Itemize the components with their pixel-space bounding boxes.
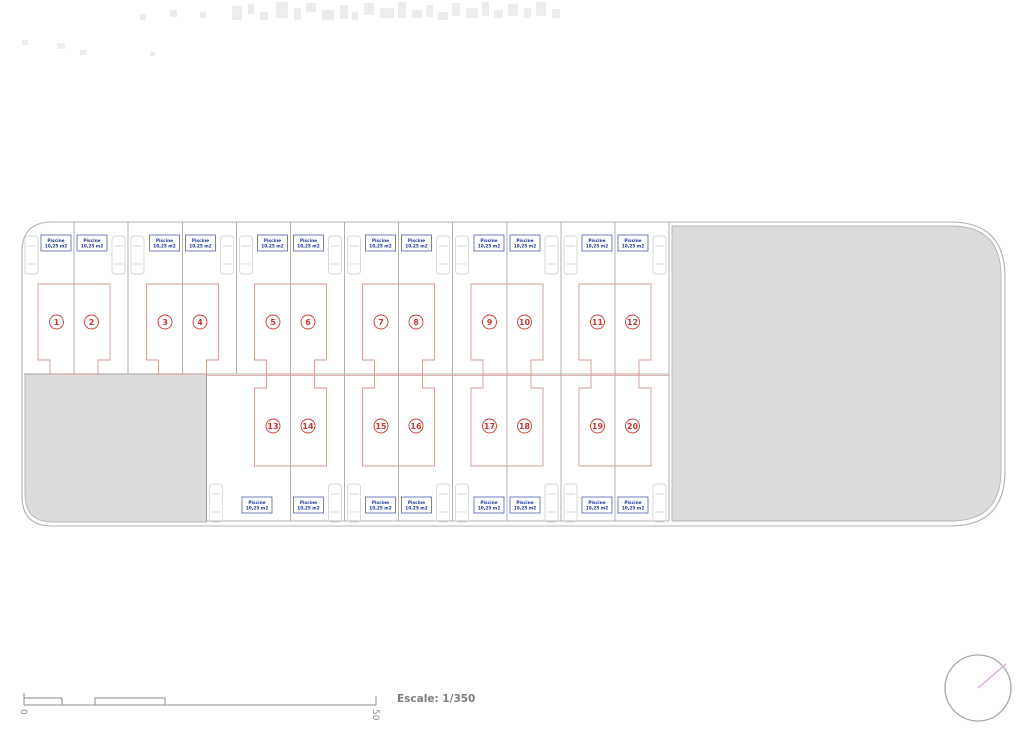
watermark-smudge — [260, 12, 268, 20]
pool-label-line1: Piscine — [588, 500, 605, 506]
plot-number-text: 2 — [89, 318, 95, 327]
pool-label-line2: 10,25 m2 — [622, 506, 645, 512]
pool-label-box: Piscine10,25 m2 — [618, 497, 648, 513]
plot-number: 18 — [518, 419, 532, 433]
plot-number: 14 — [301, 419, 315, 433]
plot-number: 20 — [626, 419, 640, 433]
pool-label-line2: 10,25 m2 — [514, 506, 537, 512]
pool-label-box: Piscine10,25 m2 — [474, 235, 504, 251]
pool-label-box: Piscine10,25 m2 — [366, 497, 396, 513]
pool-label-line2: 10,25 m2 — [297, 506, 320, 512]
pool-label-line1: Piscine — [83, 238, 100, 244]
pool-label-line2: 10,25 m2 — [369, 506, 392, 512]
pool-label-box: Piscine10,25 m2 — [41, 235, 71, 251]
watermark-fragments — [22, 2, 560, 56]
pool-label-line1: Piscine — [47, 238, 64, 244]
pool-label-line2: 10,25 m2 — [478, 506, 501, 512]
pool-label-box: Piscine10,25 m2 — [294, 235, 324, 251]
pool-label-line1: Piscine — [192, 238, 209, 244]
plot-number-text: 9 — [487, 318, 493, 327]
plot-number: 8 — [409, 315, 423, 329]
pool-label-box: Piscine10,25 m2 — [510, 235, 540, 251]
plot-number-text: 14 — [302, 422, 314, 431]
pool-label-line1: Piscine — [300, 500, 317, 506]
pool-label-box: Piscine10,25 m2 — [186, 235, 216, 251]
pool-label-box: Piscine10,25 m2 — [77, 235, 107, 251]
pool-label-line2: 10,25 m2 — [153, 244, 176, 250]
watermark-smudge — [536, 2, 546, 16]
pool-label-line2: 10,25 m2 — [478, 244, 501, 250]
pool-label-line2: 10,25 m2 — [514, 244, 537, 250]
pool-label-line2: 10,25 m2 — [586, 506, 609, 512]
plot-number-text: 4 — [197, 318, 203, 327]
pool-label-line1: Piscine — [516, 238, 533, 244]
pool-label-line2: 10,25 m2 — [369, 244, 392, 250]
scale-start-label: 0 — [18, 709, 28, 715]
plot-number-text: 6 — [305, 318, 311, 327]
watermark-smudge — [340, 5, 348, 19]
plot-number-text: 19 — [592, 422, 604, 431]
pool-label-line1: Piscine — [248, 500, 265, 506]
watermark-smudge — [426, 5, 433, 17]
plot-number: 11 — [591, 315, 605, 329]
plot-number-text: 16 — [410, 422, 422, 431]
plot-number: 6 — [301, 315, 315, 329]
watermark-smudge — [352, 12, 358, 20]
plot-number: 19 — [591, 419, 605, 433]
watermark-smudge — [150, 52, 155, 56]
pool-label-box: Piscine10,25 m2 — [582, 497, 612, 513]
pool-label-line2: 10,25 m2 — [45, 244, 68, 250]
pool-label-box: Piscine10,25 m2 — [474, 497, 504, 513]
plot-number: 12 — [626, 315, 640, 329]
scale-end-label: 50 — [370, 709, 380, 721]
common-zone-right — [672, 226, 1001, 521]
watermark-smudge — [80, 50, 86, 55]
watermark-smudge — [508, 4, 518, 16]
watermark-smudge — [248, 4, 254, 14]
north-indicator-icon — [945, 655, 1011, 721]
pool-label-line1: Piscine — [624, 238, 641, 244]
watermark-smudge — [552, 9, 560, 18]
pool-label-line1: Piscine — [480, 238, 497, 244]
plot-number: 4 — [193, 315, 207, 329]
site-plan-canvas: 0 50 Escale: 1/350 Piscine10,25 m21Pisci… — [0, 0, 1024, 732]
watermark-smudge — [22, 40, 28, 45]
plot-number: 10 — [518, 315, 532, 329]
plot-number-text: 5 — [270, 318, 276, 327]
watermark-smudge — [140, 14, 146, 20]
watermark-smudge — [232, 6, 242, 20]
plot-number-text: 15 — [375, 422, 387, 431]
plot-number-text: 3 — [162, 318, 168, 327]
plot-number-text: 12 — [627, 318, 638, 327]
watermark-smudge — [306, 3, 316, 12]
pool-label-line1: Piscine — [408, 238, 425, 244]
pool-label-line1: Piscine — [588, 238, 605, 244]
plot-number-text: 20 — [627, 422, 639, 431]
plot-number: 15 — [374, 419, 388, 433]
pool-label-line1: Piscine — [624, 500, 641, 506]
plot-number-text: 7 — [378, 318, 384, 327]
pool-label-box: Piscine10,25 m2 — [402, 235, 432, 251]
pool-label-line2: 10,25 m2 — [261, 244, 284, 250]
pool-label-line2: 10,25 m2 — [405, 244, 428, 250]
watermark-smudge — [482, 2, 489, 16]
plot-number-text: 17 — [484, 422, 495, 431]
pool-label-box: Piscine10,25 m2 — [582, 235, 612, 251]
watermark-smudge — [412, 10, 422, 18]
plot-number: 9 — [483, 315, 497, 329]
watermark-smudge — [380, 8, 394, 18]
plot-number-text: 10 — [519, 318, 531, 327]
plot-number: 16 — [409, 419, 423, 433]
watermark-smudge — [466, 8, 478, 18]
plot-number-text: 13 — [267, 422, 278, 431]
pool-label-box: Piscine10,25 m2 — [618, 235, 648, 251]
plot-number: 3 — [158, 315, 172, 329]
watermark-smudge — [438, 12, 448, 20]
site-plan-page: 0 50 Escale: 1/350 Piscine10,25 m21Pisci… — [0, 0, 1024, 732]
watermark-smudge — [57, 43, 65, 49]
pool-label-line1: Piscine — [480, 500, 497, 506]
watermark-smudge — [322, 10, 334, 20]
pool-label-line2: 10,25 m2 — [297, 244, 320, 250]
pool-label-line2: 10,25 m2 — [622, 244, 645, 250]
pool-label-line2: 10,25 m2 — [586, 244, 609, 250]
plot-number: 1 — [50, 315, 64, 329]
pool-label-box: Piscine10,25 m2 — [242, 497, 272, 513]
watermark-smudge — [524, 8, 531, 18]
pool-label-line2: 10,25 m2 — [405, 506, 428, 512]
pool-label-box: Piscine10,25 m2 — [294, 497, 324, 513]
scale-ratio-label: Escale: 1/350 — [397, 693, 475, 705]
pool-label-line1: Piscine — [516, 500, 533, 506]
pool-label-line1: Piscine — [264, 238, 281, 244]
pool-label-line1: Piscine — [300, 238, 317, 244]
watermark-smudge — [170, 10, 177, 17]
watermark-smudge — [364, 3, 374, 15]
plot-number-text: 1 — [54, 318, 60, 327]
pool-label-box: Piscine10,25 m2 — [150, 235, 180, 251]
plot-number: 7 — [374, 315, 388, 329]
watermark-smudge — [452, 3, 460, 16]
watermark-smudge — [494, 10, 503, 18]
pool-label-line1: Piscine — [372, 500, 389, 506]
pool-label-box: Piscine10,25 m2 — [402, 497, 432, 513]
watermark-smudge — [276, 2, 288, 18]
common-zone-left — [25, 374, 207, 522]
pool-label-line1: Piscine — [156, 238, 173, 244]
plot-number-text: 18 — [519, 422, 531, 431]
pool-label-box: Piscine10,25 m2 — [258, 235, 288, 251]
scale-bar — [24, 693, 376, 705]
plot-number: 2 — [85, 315, 99, 329]
plot-number: 5 — [266, 315, 280, 329]
plot-number: 13 — [266, 419, 280, 433]
plot-number-text: 11 — [592, 318, 604, 327]
pool-label-line2: 10,25 m2 — [189, 244, 212, 250]
watermark-smudge — [294, 8, 301, 20]
pool-label-line1: Piscine — [408, 500, 425, 506]
plot-number: 17 — [483, 419, 497, 433]
plot-number-text: 8 — [413, 318, 419, 327]
pool-label-box: Piscine10,25 m2 — [510, 497, 540, 513]
pool-label-line1: Piscine — [372, 238, 389, 244]
pool-label-line2: 10,25 m2 — [246, 506, 269, 512]
watermark-smudge — [200, 12, 206, 18]
pool-label-box: Piscine10,25 m2 — [366, 235, 396, 251]
pool-label-line2: 10,25 m2 — [81, 244, 104, 250]
watermark-smudge — [398, 2, 406, 18]
